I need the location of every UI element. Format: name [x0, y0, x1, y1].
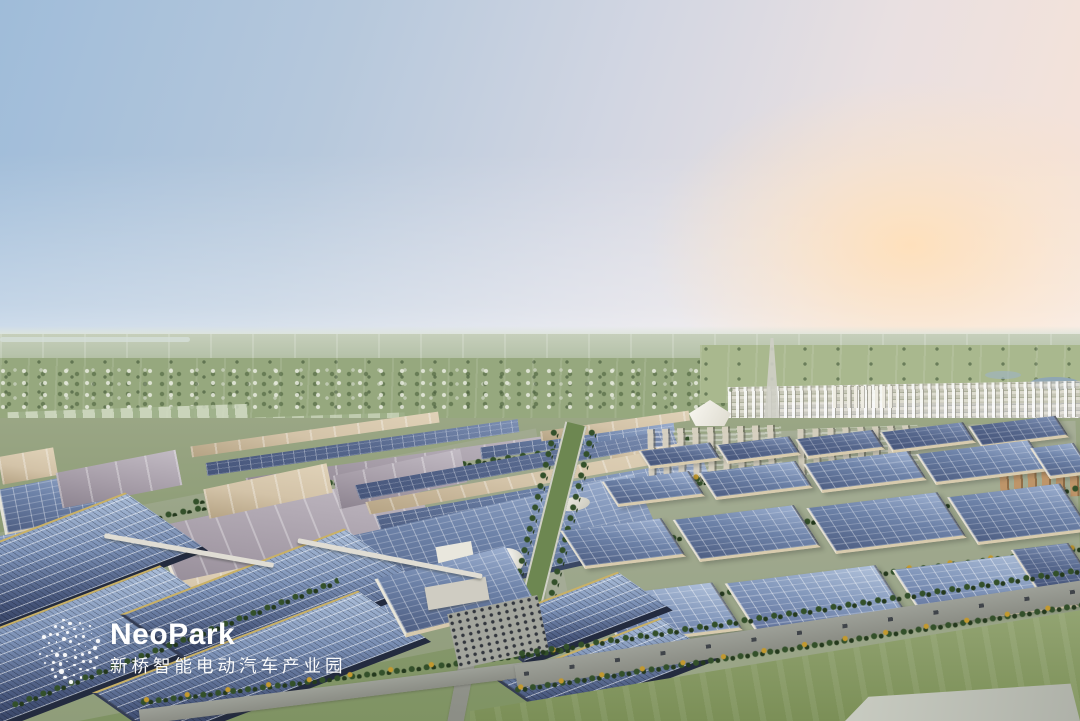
water-glint — [0, 337, 190, 342]
neopark-logo: NeoPark 新桥智能电动汽车产业园 — [30, 604, 460, 696]
logo-subtitle: 新桥智能电动汽车产业园 — [110, 653, 347, 678]
lake — [985, 371, 1021, 379]
sky — [0, 0, 1080, 340]
logo-wordmark: NeoPark — [110, 618, 235, 652]
highrise-cluster — [833, 386, 897, 408]
aerial-scene: NeoPark 新桥智能电动汽车产业园 — [0, 0, 1080, 721]
distant-village-band — [0, 368, 740, 410]
neopark-logo-icon — [30, 606, 110, 694]
